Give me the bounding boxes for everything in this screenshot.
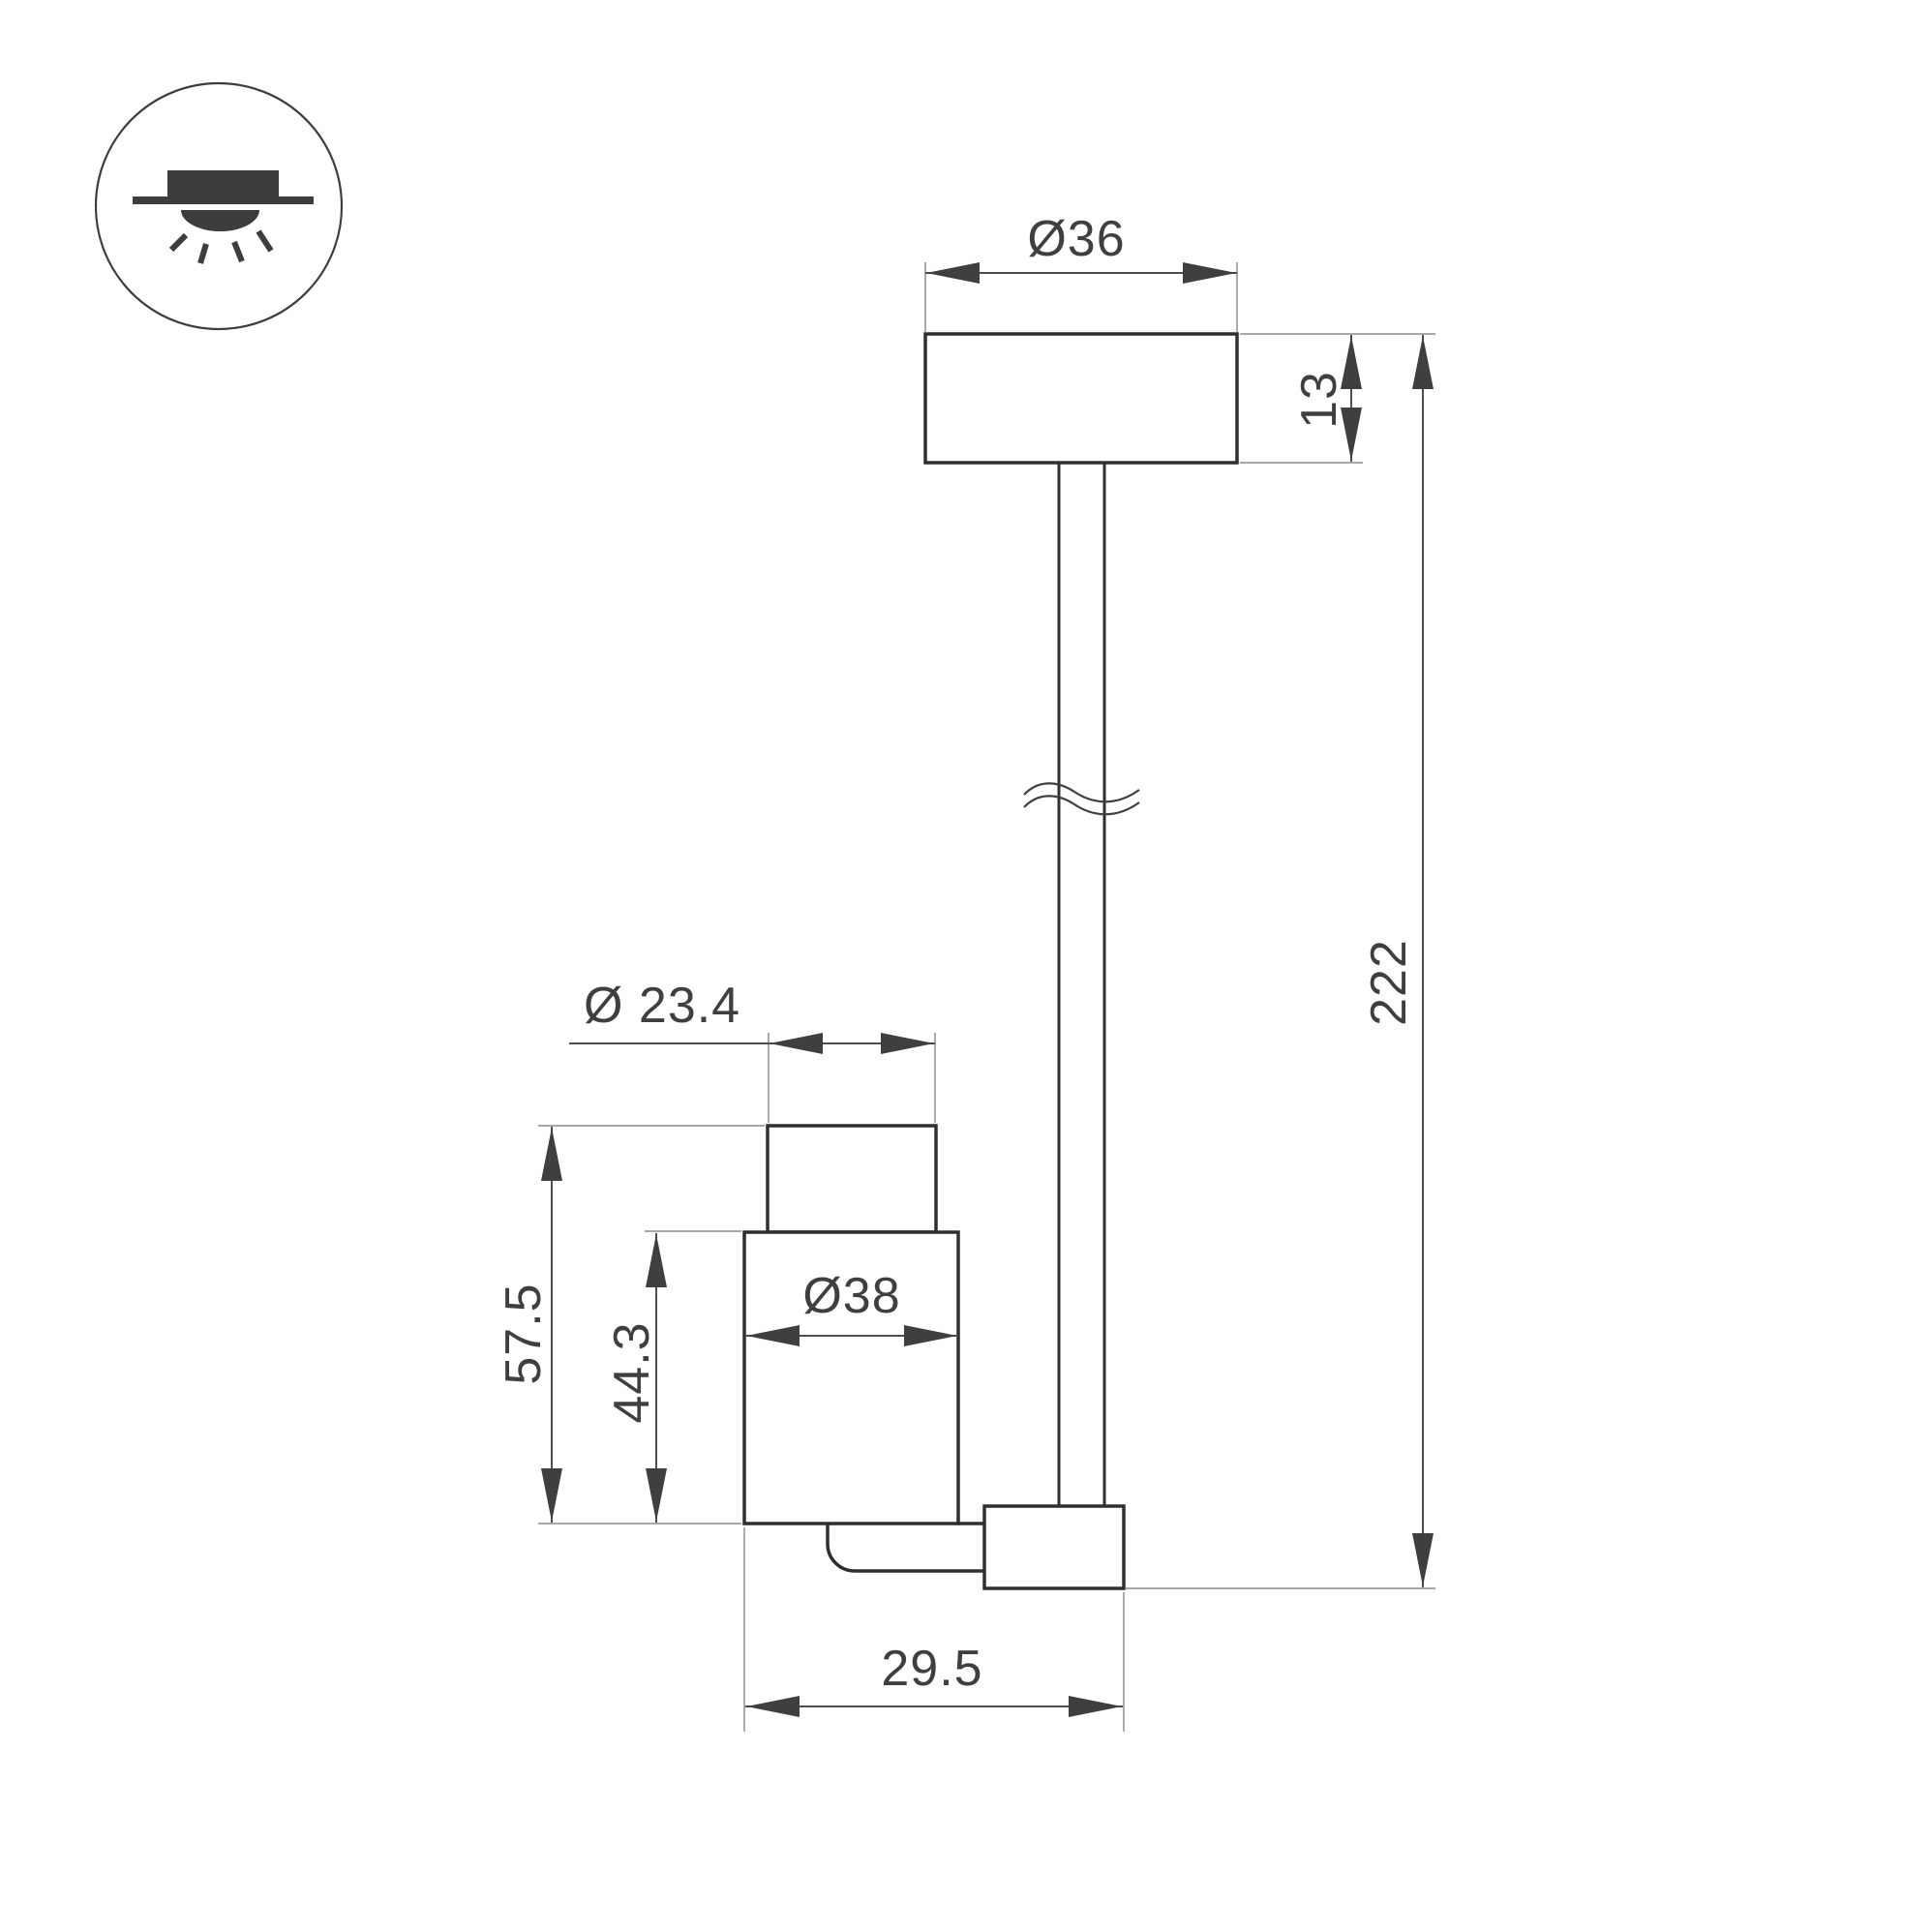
dimension-drawing-page: Ø36 13 222 Ø 23.4 57.5 <box>0 0 1932 1932</box>
spot-top-diameter-label: Ø 23.4 <box>584 978 740 1034</box>
arrowhead-left <box>746 1696 800 1717</box>
arrowhead-right <box>1069 1696 1122 1717</box>
elbow-tube <box>828 1524 985 1571</box>
icon-ray-4 <box>258 231 271 251</box>
canopy-diameter-label: Ø36 <box>1027 211 1125 267</box>
dim-canopy-diameter: Ø36 <box>925 211 1237 332</box>
arrowhead-up <box>646 1234 667 1287</box>
arrowhead-right <box>881 1033 934 1054</box>
ceiling-canopy <box>925 334 1237 463</box>
spot-body-diameter-label: Ø38 <box>802 1268 900 1324</box>
arrowhead-up <box>541 1128 562 1181</box>
icon-light-dome <box>181 210 259 231</box>
icon-canopy-block <box>167 170 279 197</box>
dim-overall-drop: 222 <box>1126 335 1435 1588</box>
rod-fitting-block <box>984 1506 1124 1588</box>
arrowhead-left <box>926 262 980 284</box>
icon-ray-3 <box>234 242 242 261</box>
spot-top-cylinder <box>768 1126 936 1232</box>
arrowhead-right <box>1183 262 1236 284</box>
arrowhead-down <box>646 1468 667 1522</box>
dim-spot-top-diameter: Ø 23.4 <box>569 978 935 1123</box>
arrowhead-down <box>541 1468 562 1522</box>
canopy-height-label: 13 <box>1291 371 1347 429</box>
spot-total-height-label: 57.5 <box>496 1283 552 1384</box>
arrowhead-left <box>770 1033 823 1054</box>
icon-ray-1 <box>171 235 186 250</box>
icon-circle <box>96 83 342 329</box>
dim-canopy-height: 13 <box>1240 334 1435 463</box>
spot-depth-label: 29.5 <box>881 1641 982 1697</box>
luminaire-outline <box>744 334 1237 1588</box>
arrowhead-up <box>1412 336 1434 389</box>
arrowhead-down <box>1412 1533 1434 1586</box>
break-symbol-wave-top <box>1024 783 1139 801</box>
mounting-type-icon <box>96 83 342 329</box>
overall-drop-label: 222 <box>1361 939 1417 1026</box>
spot-body-height-label: 44.3 <box>604 1321 660 1423</box>
icon-light-rays <box>171 231 271 263</box>
dim-spot-body-height: 44.3 <box>604 1231 741 1523</box>
dimension-drawing: Ø36 13 222 Ø 23.4 57.5 <box>0 0 1932 1932</box>
icon-ray-2 <box>200 244 206 263</box>
